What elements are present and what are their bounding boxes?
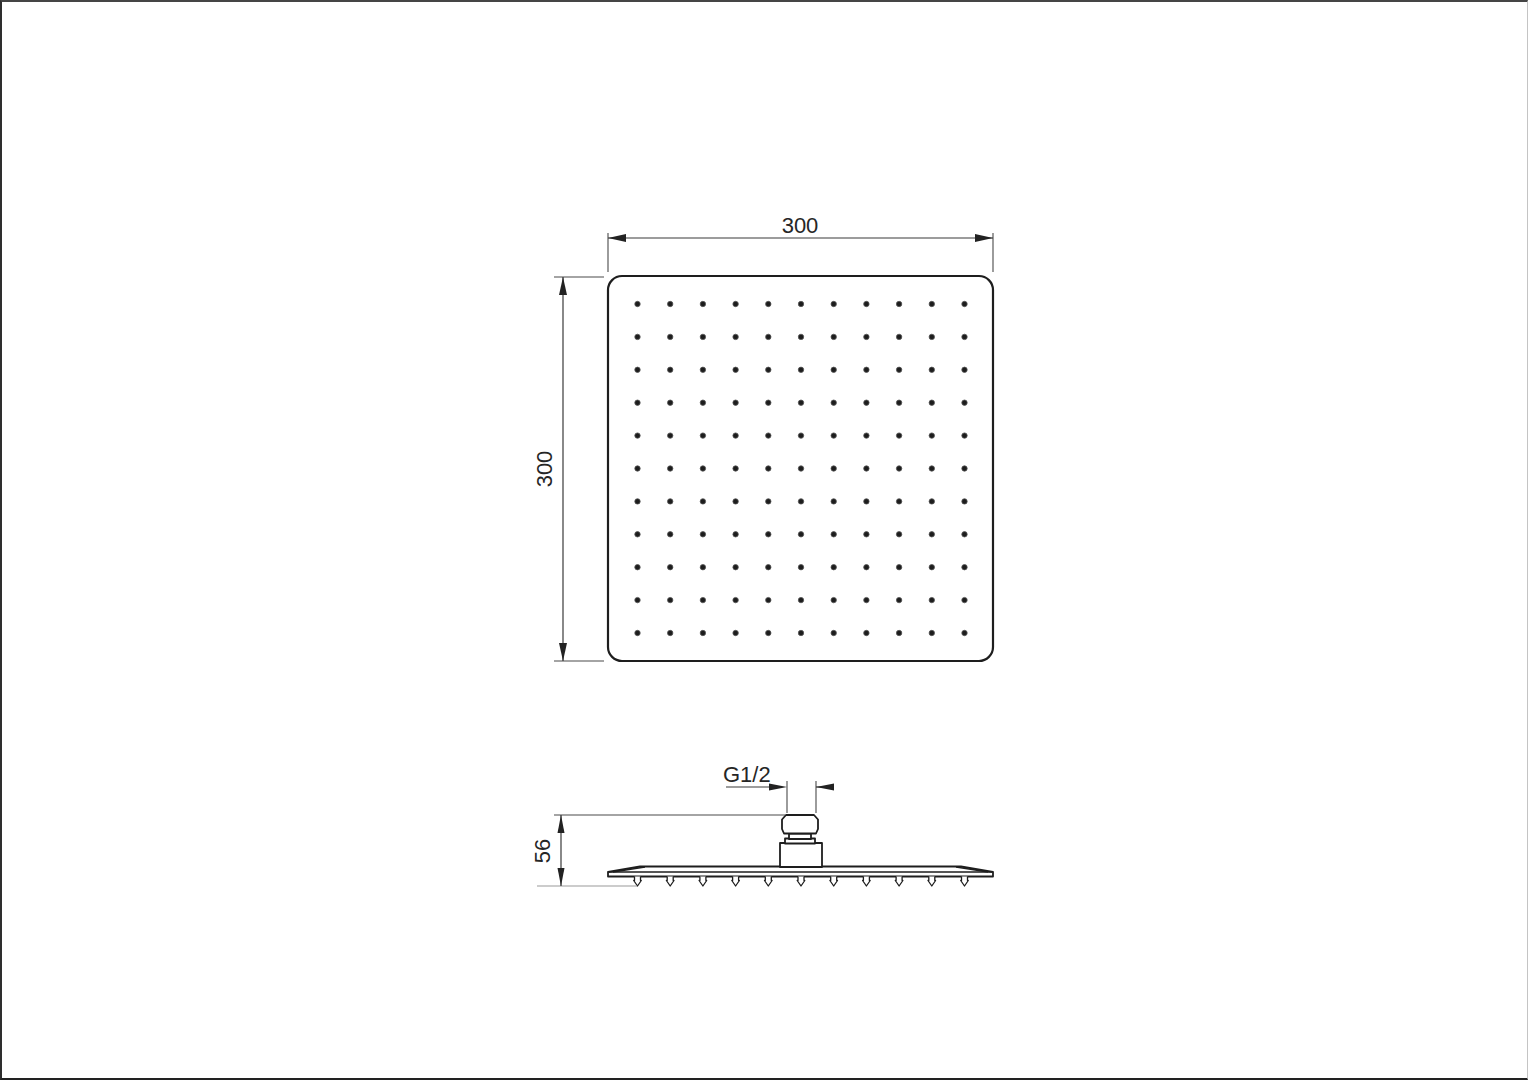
spray-hole	[700, 400, 705, 405]
spray-hole	[733, 301, 738, 306]
spray-hole	[896, 367, 901, 372]
spray-hole	[733, 433, 738, 438]
spray-hole	[864, 367, 869, 372]
spray-hole	[766, 532, 771, 537]
spray-hole	[668, 597, 673, 602]
spray-hole	[668, 433, 673, 438]
spray-hole	[864, 630, 869, 635]
spray-hole	[733, 334, 738, 339]
spray-hole	[798, 433, 803, 438]
spray-hole	[766, 301, 771, 306]
arrowhead-up-icon	[559, 277, 567, 295]
spray-hole	[831, 301, 836, 306]
spray-hole	[733, 367, 738, 372]
spray-hole	[766, 334, 771, 339]
spray-hole	[831, 334, 836, 339]
spray-hole	[896, 565, 901, 570]
spray-hole	[896, 532, 901, 537]
spray-hole	[929, 630, 934, 635]
arrowhead-down-icon	[558, 868, 565, 886]
top-height-dimension-label: 300	[532, 451, 557, 488]
spray-hole	[831, 597, 836, 602]
spray-hole	[962, 400, 967, 405]
spray-hole	[635, 301, 640, 306]
spray-hole	[700, 499, 705, 504]
spray-hole	[929, 597, 934, 602]
spray-hole	[798, 597, 803, 602]
spray-hole	[864, 532, 869, 537]
spray-hole	[668, 565, 673, 570]
spray-hole	[733, 499, 738, 504]
spray-hole	[700, 301, 705, 306]
spray-hole	[766, 565, 771, 570]
top-width-dimension: 300	[608, 213, 993, 272]
spray-hole	[798, 630, 803, 635]
spray-hole	[733, 597, 738, 602]
spray-hole	[864, 499, 869, 504]
spray-hole	[831, 466, 836, 471]
spray-hole	[700, 433, 705, 438]
spray-hole	[668, 301, 673, 306]
spray-hole	[766, 630, 771, 635]
spray-hole	[929, 367, 934, 372]
arrowhead-left-icon	[608, 234, 626, 242]
side-height-dimension-label: 56	[530, 839, 555, 863]
spray-hole	[864, 433, 869, 438]
spray-hole	[700, 565, 705, 570]
thread-fitting	[782, 815, 818, 834]
top-height-dimension: 300	[532, 277, 604, 661]
arrowhead-left-icon	[816, 784, 834, 791]
connector-base-block	[780, 843, 822, 867]
spray-hole	[831, 367, 836, 372]
spray-hole	[635, 433, 640, 438]
spray-hole	[831, 499, 836, 504]
spray-hole	[635, 630, 640, 635]
spray-hole	[929, 433, 934, 438]
spray-hole	[700, 466, 705, 471]
spray-hole	[700, 367, 705, 372]
spray-hole	[896, 499, 901, 504]
spray-hole	[896, 630, 901, 635]
arrowhead-right-icon	[769, 784, 787, 791]
spray-hole	[635, 466, 640, 471]
nozzle	[797, 877, 805, 887]
spray-hole	[733, 400, 738, 405]
spray-hole	[668, 466, 673, 471]
spray-hole	[864, 301, 869, 306]
spray-hole	[635, 367, 640, 372]
spray-hole	[766, 466, 771, 471]
spray-hole	[896, 334, 901, 339]
nozzle	[732, 877, 740, 887]
spray-hole	[766, 433, 771, 438]
spray-hole	[798, 400, 803, 405]
spray-hole	[766, 367, 771, 372]
spray-hole	[700, 532, 705, 537]
spray-hole	[962, 301, 967, 306]
spray-hole	[864, 597, 869, 602]
spray-hole	[798, 499, 803, 504]
thread-dimension: G1/2	[723, 762, 834, 813]
spray-hole	[962, 433, 967, 438]
spray-hole	[668, 400, 673, 405]
spray-hole	[668, 334, 673, 339]
spray-hole	[798, 532, 803, 537]
spray-hole	[962, 630, 967, 635]
spray-hole	[962, 597, 967, 602]
spray-hole	[668, 532, 673, 537]
top-width-dimension-label: 300	[782, 213, 819, 238]
spray-hole	[929, 532, 934, 537]
spray-hole	[962, 367, 967, 372]
spray-hole	[766, 597, 771, 602]
spray-hole	[635, 334, 640, 339]
spray-hole	[700, 334, 705, 339]
spray-hole	[733, 466, 738, 471]
spray-hole	[798, 367, 803, 372]
nozzle	[863, 877, 871, 887]
nozzle	[830, 877, 838, 887]
spray-hole	[962, 466, 967, 471]
nozzle	[928, 877, 936, 887]
spray-hole	[864, 466, 869, 471]
nozzle	[961, 877, 969, 887]
spray-hole	[733, 630, 738, 635]
spray-hole	[635, 597, 640, 602]
spray-hole	[962, 565, 967, 570]
thread-dimension-label: G1/2	[723, 762, 771, 787]
spray-hole	[864, 400, 869, 405]
spray-hole	[929, 301, 934, 306]
spray-hole	[896, 400, 901, 405]
spray-hole	[896, 466, 901, 471]
spray-hole	[635, 499, 640, 504]
nozzle-row	[634, 877, 969, 887]
spray-hole	[929, 466, 934, 471]
spray-hole	[668, 367, 673, 372]
spray-hole	[733, 532, 738, 537]
spray-hole	[962, 532, 967, 537]
spray-hole	[929, 400, 934, 405]
arrowhead-up-icon	[558, 815, 565, 833]
spray-hole	[798, 301, 803, 306]
nozzle	[699, 877, 707, 887]
spray-hole	[668, 499, 673, 504]
spray-hole	[831, 433, 836, 438]
nozzle	[895, 877, 903, 887]
nozzle	[666, 877, 674, 887]
spray-hole	[798, 565, 803, 570]
spray-hole	[635, 400, 640, 405]
spray-hole	[700, 630, 705, 635]
spray-hole	[962, 499, 967, 504]
drawing-sheet: 300 300	[0, 0, 1528, 1080]
spray-hole	[831, 400, 836, 405]
spray-hole	[766, 400, 771, 405]
nozzle	[765, 877, 773, 887]
spray-hole	[864, 334, 869, 339]
spray-hole	[668, 630, 673, 635]
shower-head-technical-drawing: 300 300	[0, 0, 1528, 1080]
spray-hole	[635, 532, 640, 537]
spray-hole	[831, 532, 836, 537]
spray-hole	[962, 334, 967, 339]
spray-hole	[798, 466, 803, 471]
nozzle	[634, 877, 642, 887]
spray-hole	[896, 433, 901, 438]
top-view	[608, 276, 993, 661]
spray-hole	[896, 301, 901, 306]
spray-hole	[798, 334, 803, 339]
arrowhead-right-icon	[975, 234, 993, 242]
spray-hole	[635, 565, 640, 570]
side-view	[608, 815, 993, 886]
spray-hole	[766, 499, 771, 504]
spray-hole	[929, 334, 934, 339]
spray-hole	[831, 565, 836, 570]
spray-hole	[896, 597, 901, 602]
spray-hole	[929, 565, 934, 570]
spray-hole	[929, 499, 934, 504]
arrowhead-down-icon	[559, 643, 567, 661]
spray-hole	[733, 565, 738, 570]
spray-hole	[700, 597, 705, 602]
spray-hole	[864, 565, 869, 570]
spray-hole	[831, 630, 836, 635]
